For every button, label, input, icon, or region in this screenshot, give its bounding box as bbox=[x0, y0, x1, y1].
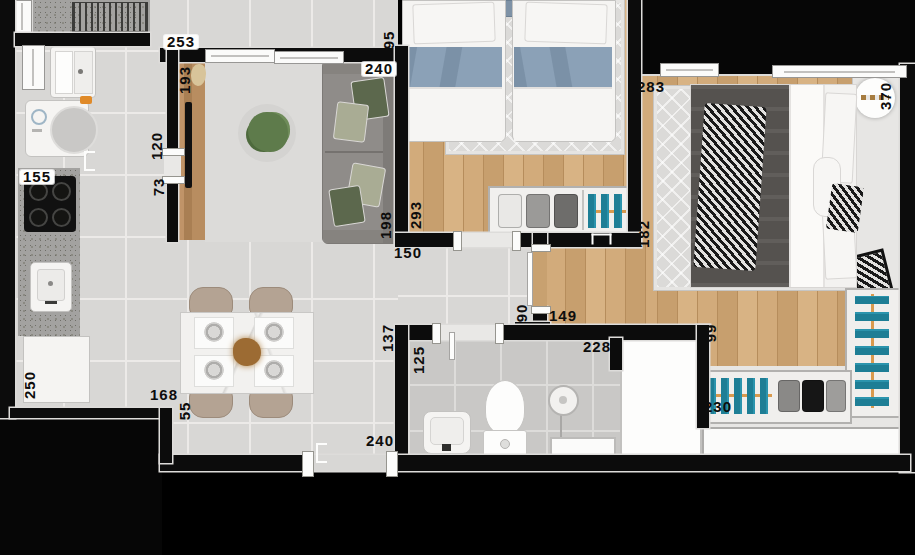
entry-door-hinge bbox=[316, 443, 327, 463]
dim-228: 228 bbox=[583, 340, 611, 354]
service-door-hinge bbox=[84, 151, 95, 171]
master-wardrobe-bottom bbox=[700, 370, 852, 424]
centerpiece bbox=[233, 338, 261, 366]
folded-black bbox=[802, 380, 824, 412]
dining-table bbox=[180, 312, 314, 394]
entry-door-jamb-left bbox=[302, 451, 314, 477]
wardrobe-divider bbox=[582, 190, 584, 230]
houndstooth-pillow bbox=[826, 183, 864, 233]
bathroom-door-jamb-right bbox=[495, 323, 504, 344]
dim-150: 150 bbox=[394, 246, 422, 260]
window-living-2 bbox=[274, 51, 344, 64]
tub-drain bbox=[78, 69, 83, 74]
bedroom2-door-hinge bbox=[592, 234, 612, 245]
window-service bbox=[12, 0, 32, 33]
dim-198: 198 bbox=[377, 207, 395, 243]
houndstooth-throw bbox=[693, 103, 766, 271]
shower-head-center bbox=[559, 396, 567, 404]
double-bed bbox=[690, 84, 857, 288]
dim-120: 120 bbox=[148, 128, 166, 164]
master-doorway bbox=[533, 249, 547, 307]
master-wardrobe-right bbox=[845, 288, 902, 418]
dim-95: 95 bbox=[380, 24, 398, 56]
drying-rack bbox=[72, 2, 148, 32]
wall-left bbox=[0, 0, 15, 418]
bathroom-sink-basin bbox=[430, 417, 464, 445]
wall-south bbox=[160, 455, 910, 471]
folded-gray bbox=[778, 380, 800, 412]
single-bed-left-duvet bbox=[404, 87, 502, 141]
dim-73: 73 bbox=[150, 172, 168, 202]
dim-90: 90 bbox=[513, 297, 531, 329]
master-door-jamb-top bbox=[531, 244, 551, 252]
kitchen-sink bbox=[30, 262, 72, 312]
dim-137: 137 bbox=[379, 321, 397, 355]
dim-230: 230 bbox=[704, 400, 732, 414]
dim-250: 250 bbox=[21, 367, 39, 403]
kitchen-faucet bbox=[45, 301, 57, 304]
dim-253: 253 bbox=[164, 35, 198, 49]
bathroom-doorway bbox=[437, 325, 497, 340]
single-bed-left-pillow bbox=[412, 2, 495, 45]
hanging-clothes-right bbox=[855, 296, 889, 406]
sofa-armrest-bottom bbox=[323, 230, 383, 243]
plant-icon bbox=[248, 112, 288, 152]
dim-193: 193 bbox=[176, 62, 194, 98]
dim-240-sofa: 240 bbox=[362, 62, 396, 76]
washing-machine bbox=[25, 100, 89, 157]
bathroom-faucet bbox=[442, 444, 451, 451]
floor-plan: 253 95 193 240 120 73 155 198 293 150 28… bbox=[0, 0, 915, 555]
toilet-bowl bbox=[485, 380, 525, 434]
toilet-button bbox=[500, 439, 510, 449]
dim-149: 149 bbox=[549, 309, 577, 323]
sink-drain bbox=[48, 281, 53, 286]
folded-clothes-light bbox=[498, 194, 522, 228]
dim-55: 55 bbox=[176, 397, 194, 425]
bathroom-sink bbox=[423, 411, 471, 454]
dim-283: 283 bbox=[637, 80, 665, 94]
dim-293: 293 bbox=[406, 197, 426, 233]
bathroom-door-leaf bbox=[449, 332, 455, 360]
pillow-sage-1 bbox=[333, 101, 369, 143]
dim-370: 370 bbox=[877, 78, 895, 114]
soap-dish bbox=[80, 96, 92, 104]
single-bed-left bbox=[402, 0, 506, 142]
washer-dial bbox=[31, 109, 47, 125]
single-bed-right-pillow bbox=[524, 2, 607, 45]
plate-4 bbox=[264, 360, 284, 380]
entry-door-jamb-right bbox=[386, 451, 398, 477]
single-bed-right-blanket bbox=[514, 47, 612, 87]
bathroom-door-jamb-left bbox=[432, 323, 441, 344]
hanging-clothes-teal bbox=[588, 194, 626, 228]
wall-right bbox=[900, 64, 915, 472]
laundry-tub-basin bbox=[74, 51, 93, 94]
window-living-1 bbox=[205, 49, 275, 63]
bedroom2-door-jamb-left bbox=[453, 231, 462, 251]
window-laundry bbox=[22, 45, 45, 90]
wall-step-horizontal bbox=[10, 408, 170, 418]
laundry-tub-lid bbox=[55, 51, 73, 94]
plate-2 bbox=[264, 322, 284, 342]
bedroom2-door-jamb-right bbox=[512, 231, 521, 251]
sofa-cushion-split bbox=[325, 151, 383, 153]
placemat-2 bbox=[254, 317, 294, 349]
master-door-jamb-bottom bbox=[531, 306, 551, 314]
wall-bedroom2-east bbox=[628, 0, 641, 247]
dim-240-entry: 240 bbox=[366, 434, 394, 448]
placemat-3 bbox=[194, 355, 234, 387]
plate-3 bbox=[204, 360, 224, 380]
washer-drum bbox=[50, 106, 98, 154]
wall-step-vertical bbox=[160, 408, 172, 463]
bedroom2-doorway bbox=[458, 233, 514, 247]
bedroom2-wardrobe bbox=[488, 186, 634, 238]
window-master-2 bbox=[772, 65, 907, 78]
placemat-4 bbox=[254, 355, 294, 387]
single-bed-right bbox=[512, 0, 616, 142]
dim-155: 155 bbox=[20, 170, 54, 184]
dim-125: 125 bbox=[410, 342, 428, 378]
wall-shower-stub bbox=[610, 338, 622, 370]
single-bed-right-duvet bbox=[514, 87, 612, 141]
folded-clothes-dark bbox=[554, 194, 578, 228]
tv bbox=[185, 102, 192, 188]
pillow-green-2 bbox=[328, 185, 366, 228]
folded-clothes-gray bbox=[526, 194, 550, 228]
dim-99: 99 bbox=[702, 318, 720, 348]
window-master-1 bbox=[660, 63, 719, 77]
dim-168: 168 bbox=[150, 388, 178, 402]
toilet bbox=[483, 380, 525, 455]
placemat-1 bbox=[194, 317, 234, 349]
plate-1 bbox=[204, 322, 224, 342]
shower-box bbox=[620, 338, 702, 459]
folded-light bbox=[826, 380, 846, 412]
dim-182: 182 bbox=[635, 215, 653, 253]
shower-head bbox=[548, 385, 579, 416]
washer-panel bbox=[32, 129, 42, 132]
laundry-tub bbox=[50, 46, 96, 98]
exterior-void-bottomleft bbox=[0, 418, 162, 555]
single-bed-left-blanket bbox=[404, 47, 502, 87]
